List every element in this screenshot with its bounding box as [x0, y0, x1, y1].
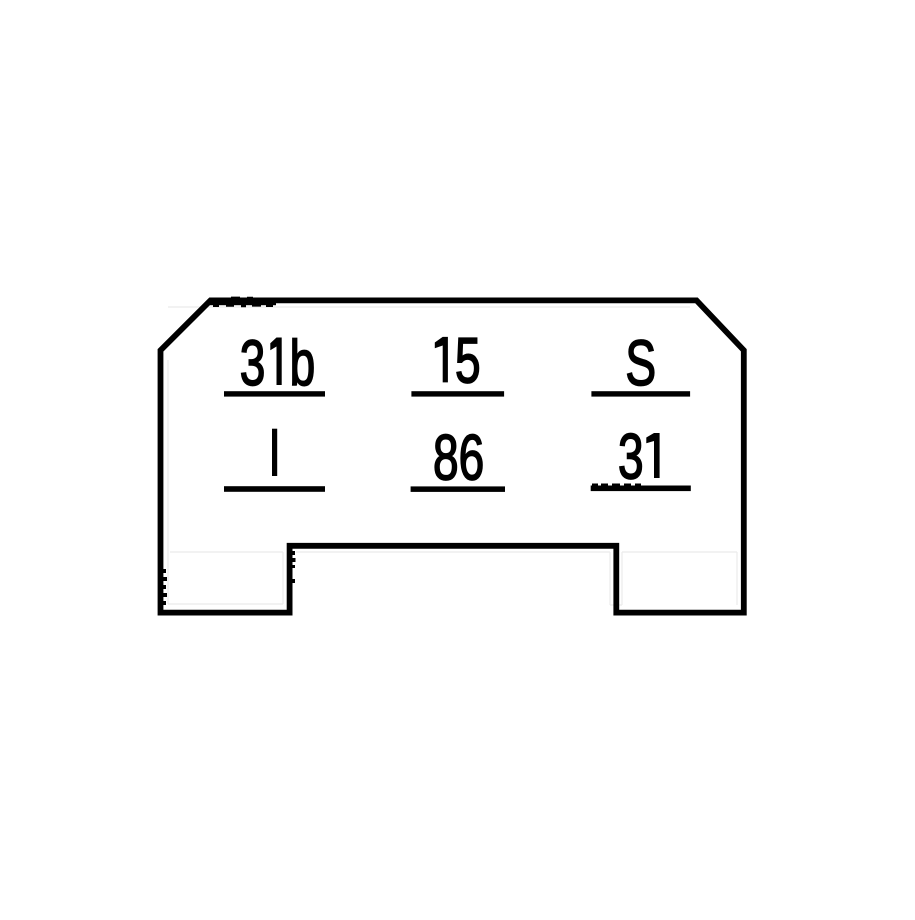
svg-text:86: 86 [433, 422, 484, 493]
svg-text:5: 5 [455, 325, 481, 396]
svg-text:3: 3 [618, 421, 644, 492]
svg-text:S: S [625, 328, 656, 399]
svg-text:3: 3 [240, 328, 266, 399]
svg-text:b: b [290, 328, 316, 399]
